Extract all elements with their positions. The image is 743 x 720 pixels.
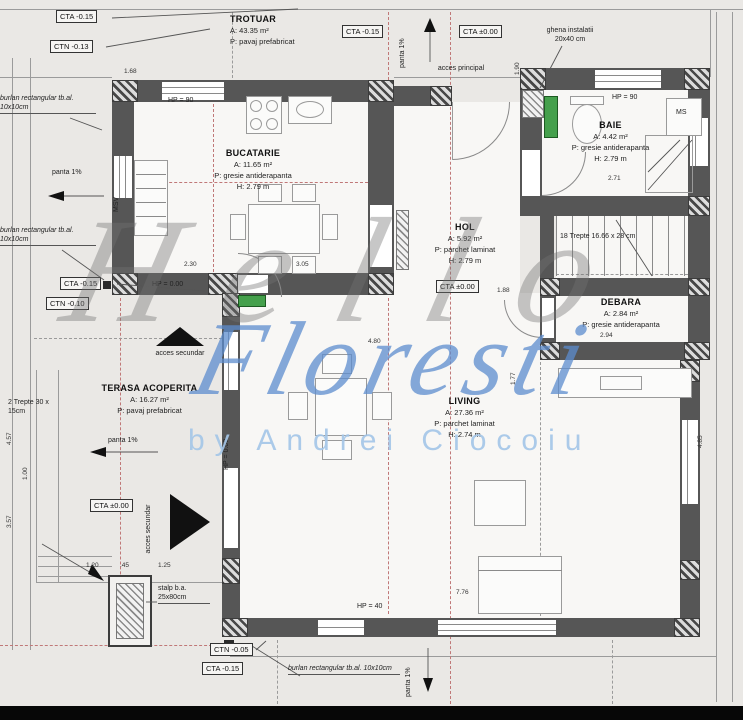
bottom-black-bar <box>0 706 743 720</box>
elevation-label: CTN -0.10 <box>46 297 89 310</box>
room-name: BUCATARIE <box>173 148 333 159</box>
room-floor: P: parchet laminat <box>400 244 530 255</box>
dimension-text: 3.05 <box>296 261 309 269</box>
wall-hatch <box>112 80 138 102</box>
arrowhead <box>90 447 106 457</box>
dimension-text: 1.68 <box>124 68 137 76</box>
wall-hatch <box>222 618 248 637</box>
wall-hatch <box>368 80 394 102</box>
bath-window <box>595 70 661 88</box>
annotation-text: HP = 0.00 <box>152 280 183 289</box>
dimension-text: 1.20 <box>86 562 99 570</box>
wall-hatch <box>112 273 138 295</box>
annotation-text: ghena instalatii 20x40 cm <box>538 26 602 44</box>
room-label-trotuar: TROTUAR A: 43.35 m² P: pavaj prefabricat <box>230 14 360 47</box>
dimension-text: 2.94 <box>600 332 613 340</box>
wall-hatch <box>674 618 700 637</box>
chair <box>258 256 282 274</box>
dim-line <box>716 12 717 702</box>
shelf-line <box>136 216 166 217</box>
kitchen-table <box>248 204 320 254</box>
annotation-text: acces secundar <box>144 500 153 558</box>
downspout-marker <box>103 281 111 289</box>
room-label-debara: DEBARA A: 2.84 m² P: gresie antiderapant… <box>552 297 690 330</box>
chair <box>322 214 338 240</box>
dim-line <box>30 58 31 650</box>
arrowhead <box>423 678 433 692</box>
wall-hatch <box>680 560 700 580</box>
wall-hatch <box>368 273 394 295</box>
axis-line <box>277 640 278 704</box>
elevation-label: CTA ±0.00 <box>459 25 502 38</box>
dimension-text: 3.57 <box>6 515 14 528</box>
room-label-living: LIVING A: 27.36 m² P: parchet laminat H:… <box>392 396 537 440</box>
secondary-access-triangle-up <box>156 327 204 346</box>
room-label-bucatarie: BUCATARIE A: 11.65 m² P: gresie antidera… <box>173 148 333 192</box>
living-side-window <box>224 332 238 390</box>
annotation-text: MS <box>676 108 687 117</box>
stove-burner <box>266 118 278 130</box>
chair <box>288 392 308 420</box>
elevation-label: CTN -0.13 <box>50 40 93 53</box>
duct-shaft-hatch <box>522 90 544 118</box>
shelf-line <box>136 202 166 203</box>
annotation-text: acces secundar <box>150 349 210 358</box>
dim-line <box>0 9 743 10</box>
window-mullion <box>318 627 364 628</box>
step-line <box>38 576 112 577</box>
living-window-large <box>438 620 556 635</box>
room-height: H: 2.79 m <box>538 153 683 164</box>
sidewalk-edge <box>0 77 112 78</box>
annotation-text: HP = 90 <box>168 96 193 105</box>
annotation-text: 2 Trepte 30 x 15cm <box>8 398 60 416</box>
dim-line <box>230 656 716 657</box>
steps-arrow <box>42 544 98 577</box>
dimension-text: 4.85 <box>697 435 705 448</box>
tv-cabinet-inner <box>600 376 642 390</box>
stair-treads <box>556 216 688 276</box>
annotation-text: MSV <box>112 197 121 212</box>
porch-edge <box>394 77 520 78</box>
dimension-text: 7.76 <box>456 589 469 597</box>
room-floor: P: pavaj prefabricat <box>82 405 217 416</box>
annotation-text: burlan rectangular tb.al. 10x10cm <box>0 94 96 114</box>
window-mullion <box>595 75 661 76</box>
kitchen-cabinet <box>134 160 168 236</box>
wall-hatch <box>684 68 710 90</box>
wall-bath-bottom <box>520 196 710 216</box>
wall-hatch <box>208 273 238 295</box>
sofa <box>478 556 562 614</box>
dimension-text: 2.71 <box>608 175 621 183</box>
chair <box>322 440 352 460</box>
stove-burner <box>250 118 262 130</box>
living-side-window-right <box>682 420 698 504</box>
room-floor: P: pavaj prefabricat <box>230 36 360 47</box>
shelf-line <box>136 188 166 189</box>
dim-line <box>12 58 13 650</box>
wall-pantry-top <box>540 278 710 296</box>
shelf-line <box>136 174 166 175</box>
room-floor: P: gresie antiderapanta <box>552 319 690 330</box>
room-label-hol: HOL A: 5.92 m² P: parchet laminat H: 2.7… <box>400 222 530 266</box>
room-name: BAIE <box>538 120 683 131</box>
wall-hatch <box>520 68 546 90</box>
room-height: H: 2.79 m <box>400 255 530 266</box>
dimension-text: 4.57 <box>6 432 14 445</box>
wall-stairs-left <box>540 216 554 278</box>
room-label-terasa: TERASA ACOPERITA A: 16.27 m² P: pavaj pr… <box>82 383 217 416</box>
dimension-text: 1.77 <box>510 372 518 385</box>
kitchen-side-window <box>114 156 132 198</box>
window-mullion <box>687 420 688 504</box>
room-name: TROTUAR <box>230 14 360 25</box>
elevation-label: CTA -0.15 <box>56 10 97 23</box>
room-name: DEBARA <box>552 297 690 308</box>
window-mullion <box>125 156 126 198</box>
annotation-text: panta 1% <box>108 436 138 445</box>
annotation-text: burlan rectangular tb.al. 10x10cm <box>0 226 96 246</box>
axis-line <box>34 338 222 339</box>
elevation-label: CTA -0.15 <box>202 662 243 675</box>
room-label-baie: BAIE A: 4.42 m² P: gresie antiderapanta … <box>538 120 683 164</box>
elevation-label: CTA -0.15 <box>342 25 383 38</box>
living-table <box>315 378 367 436</box>
room-name: LIVING <box>392 396 537 407</box>
annotation-text: burlan rectangular tb.al. 10x10cm <box>288 664 400 675</box>
annotation-text: panta 1% <box>404 667 413 697</box>
stove-burner <box>250 100 262 112</box>
dimension-text: 1.25 <box>158 562 171 570</box>
room-area: A: 27.36 m² <box>392 407 537 418</box>
kitchen-hall-door-gap <box>370 205 392 267</box>
window-mullion <box>119 156 120 198</box>
sidewalk-edge <box>710 9 711 77</box>
room-area: A: 11.65 m² <box>173 159 333 170</box>
column-hatch <box>116 583 144 639</box>
room-name: TERASA ACOPERITA <box>82 383 217 394</box>
entry-door-leaf <box>452 102 453 160</box>
window-mullion <box>162 87 224 88</box>
dimension-text: .45 <box>120 562 129 570</box>
dimension-text: 1.88 <box>497 287 510 295</box>
annotation-text: 18 Trepte 16.66 x 28 cm <box>560 232 690 241</box>
dimension-text: 1.00 <box>22 467 30 480</box>
secondary-door-gap <box>224 468 238 548</box>
sink-basin <box>296 101 324 118</box>
room-area: A: 16.27 m² <box>82 394 217 405</box>
axis-line <box>388 12 389 80</box>
wall-hatch <box>688 278 710 296</box>
chair <box>322 354 352 374</box>
annotation-text: HP = 0.00 <box>222 439 231 470</box>
stove-burner <box>266 100 278 112</box>
axis-line <box>450 12 451 704</box>
wall-hatch <box>430 86 452 106</box>
elevation-label: CTN -0.05 <box>210 643 253 656</box>
axis-line <box>612 640 613 704</box>
window-mullion <box>228 332 229 390</box>
room-area: A: 2.84 m² <box>552 308 690 319</box>
elevation-label: CTA -0.15 <box>60 277 101 290</box>
dimension-text: 4.80 <box>368 338 381 346</box>
arrowhead <box>424 18 436 32</box>
window-mullion <box>438 630 556 631</box>
chair <box>230 214 246 240</box>
arrowhead <box>48 191 64 201</box>
room-name: HOL <box>400 222 530 233</box>
elevation-label: CTA ±0.00 <box>436 280 479 293</box>
dim-line <box>732 12 733 702</box>
room-area: A: 4.42 m² <box>538 131 683 142</box>
room-floor: P: gresie antiderapanta <box>538 142 683 153</box>
room-area: A: 43.35 m² <box>230 25 360 36</box>
secondary-access-triangle-right <box>170 494 210 550</box>
annotation-text: HP = 90 <box>612 93 637 102</box>
window-mullion <box>438 624 556 625</box>
wall-hatch <box>540 278 560 296</box>
elevation-label: CTA ±0.00 <box>90 499 133 512</box>
wall-hatch <box>684 342 710 360</box>
floor-plan-canvas: TROTUAR A: 43.35 m² P: pavaj prefabricat… <box>0 0 743 720</box>
annotation-text: stalp b.a. 25x80cm <box>158 584 210 604</box>
label-leader <box>256 641 266 650</box>
armchair <box>474 480 526 526</box>
room-floor: P: parchet laminat <box>392 418 537 429</box>
room-area: A: 5.92 m² <box>400 233 530 244</box>
wall-hatch <box>688 196 710 216</box>
sofa-line <box>478 570 562 571</box>
annotation-text: HP = 40 <box>357 602 382 611</box>
step-line <box>38 566 112 567</box>
chair <box>372 392 392 420</box>
annotation-text: panta 1% <box>52 168 82 177</box>
step-line <box>38 556 112 557</box>
wall-hatch <box>540 342 560 360</box>
room-floor: P: gresie antiderapanta <box>173 170 333 181</box>
room-height: H: 2.79 m <box>173 181 333 192</box>
window-mullion <box>162 93 224 94</box>
axis-line <box>388 298 389 614</box>
annotation-text: panta 1% <box>398 38 407 68</box>
window-mullion <box>595 81 661 82</box>
wall-hatch <box>222 558 240 584</box>
room-height: H: 2.74 m <box>392 429 537 440</box>
dimension-text: 1.90 <box>514 62 522 75</box>
annotation-text: acces principal <box>436 64 486 73</box>
dimension-text: 2.30 <box>184 261 197 269</box>
